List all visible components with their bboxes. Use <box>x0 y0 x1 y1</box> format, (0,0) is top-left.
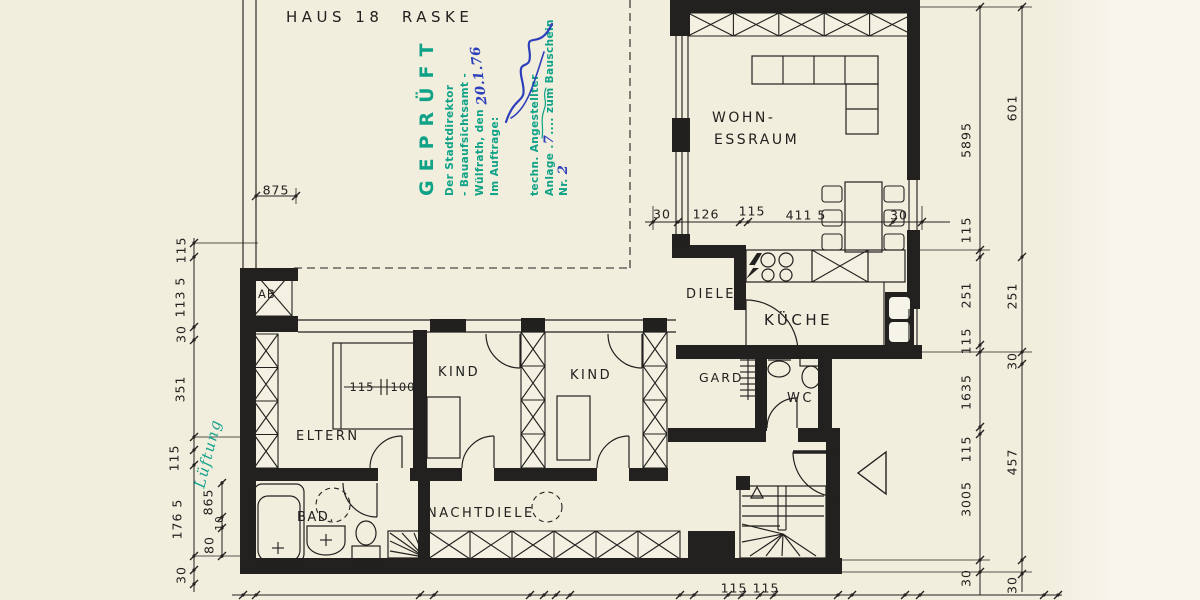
small-stamp-scribble <box>542 88 546 138</box>
dimension-label: 1635 <box>959 374 974 410</box>
dimension-label: 30 <box>174 325 189 343</box>
dimension-label: 30 <box>1005 352 1020 370</box>
dimension-label: 115 <box>959 328 974 355</box>
room-label-diele: DIELE <box>686 287 736 302</box>
room-label-garderobe: GARD <box>699 370 744 385</box>
dimension-label: 351 <box>173 376 188 403</box>
dimension-label: 30 <box>653 207 671 222</box>
dimension-label: 113 5 <box>173 277 188 318</box>
stamp-word: GEPRÜFT <box>416 0 438 196</box>
room-label-wohnraum-line2: ESSRAUM <box>714 132 799 148</box>
dimension-label: 115 <box>167 445 182 472</box>
room-label-eltern: ELTERN <box>296 429 360 444</box>
dimension-label: 865 <box>201 489 216 516</box>
dimension-label: 5895 <box>959 122 974 158</box>
dimension-label: 875 <box>263 183 290 198</box>
dimension-label: 115 <box>753 581 780 596</box>
dimension-label: 251 <box>1005 283 1020 310</box>
stamp-authority: Der Stadtdirektor <box>443 0 458 196</box>
room-label-kind-2: KIND <box>570 368 612 383</box>
dimension-label: 115 <box>959 217 974 244</box>
dimension-label: 115 <box>174 237 189 264</box>
room-label-nachtdiele: NACHTDIELE <box>427 506 535 521</box>
handwritten-date: 20.1.76 <box>468 45 490 105</box>
dimension-label: 80 <box>202 536 217 554</box>
dimension-label: 115 <box>959 436 974 463</box>
dimension-label: 115 <box>721 581 748 596</box>
room-label-kueche: KÜCHE <box>764 311 833 329</box>
room-label-bad: BAD. <box>297 510 335 525</box>
dimension-label: 251 <box>959 282 974 309</box>
stamp-city-date: Wülfrath, den 20.1.76 <box>472 0 488 196</box>
dimension-label: 30 <box>1005 576 1020 594</box>
handwritten-bauschein-number: 2 <box>556 165 571 174</box>
room-label-ab-shaft: AB <box>258 287 276 301</box>
room-label-kind-1: KIND <box>438 365 480 380</box>
dimension-label: 30 <box>174 566 189 584</box>
dimension-label: 176 5 <box>170 499 185 540</box>
dimension-label: 115 <box>350 380 375 394</box>
stamp-office: - Bauaufsichtsamt - <box>458 0 473 196</box>
floor-plan: HAUS 18 RASKE WOHN- ESSRAUM DIELE KÜCHE … <box>0 0 1200 600</box>
dimension-label: 30 <box>959 569 974 587</box>
dimension-label: 3005 <box>959 481 974 517</box>
dimension-label: 30 <box>890 208 908 223</box>
dimension-label: 126 <box>693 207 720 222</box>
dimension-label: 457 <box>1005 449 1020 476</box>
room-label-wc: WC <box>787 391 814 406</box>
room-label-wohnraum-line1: WOHN- <box>712 110 775 126</box>
dimension-label: 601 <box>1005 95 1020 122</box>
dimension-label: 115 <box>739 204 766 219</box>
dimension-label: 411 5 <box>786 208 827 223</box>
dimension-label: 100 <box>391 380 416 394</box>
signature-scribble <box>498 18 562 142</box>
dimension-label: 10 <box>214 515 226 530</box>
